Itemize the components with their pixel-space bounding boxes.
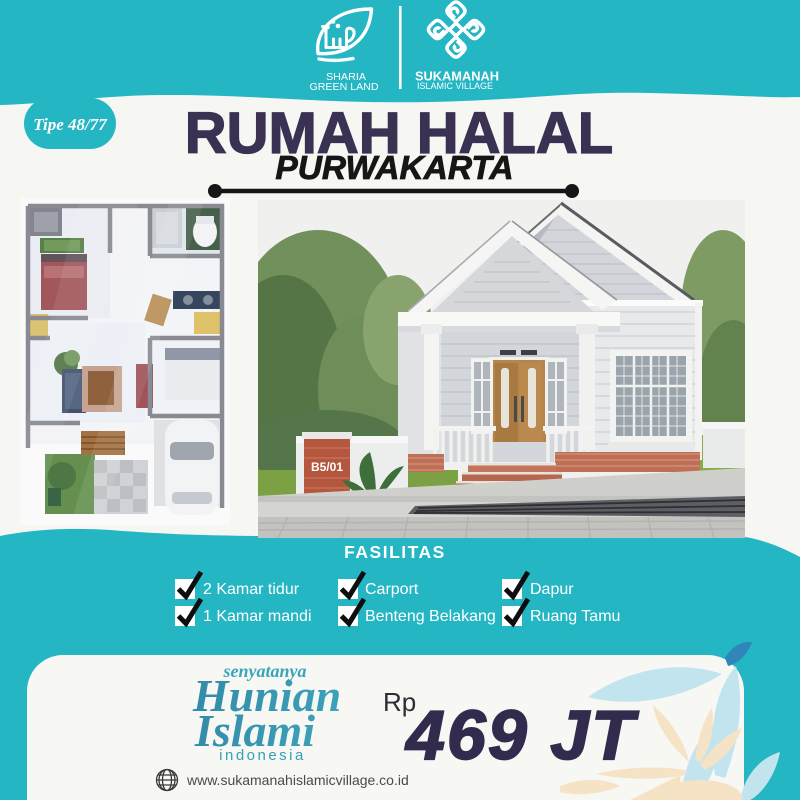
- svg-text:B5/01: B5/01: [311, 460, 343, 474]
- svg-text:GREEN LAND: GREEN LAND: [310, 81, 379, 93]
- svg-text:ISLAMIC VILLAGE: ISLAMIC VILLAGE: [417, 81, 493, 91]
